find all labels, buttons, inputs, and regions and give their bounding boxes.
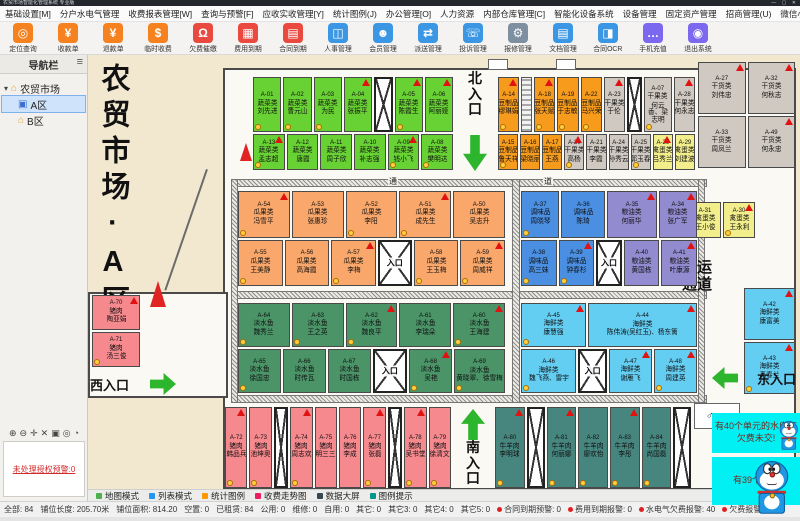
market-stall[interactable]: A-59瓜果类周威祥 (460, 240, 505, 287)
warning-panel: 未处理授权预警:0 (3, 441, 85, 497)
market-stall[interactable]: A-77猪肉张磊 (363, 407, 385, 488)
market-stall[interactable]: A-13蔬菜类孟志超 (253, 134, 285, 170)
toolbar-button[interactable]: ◎定位查询 (2, 23, 44, 54)
market-stall[interactable]: A-12蔬菜类唐霞 (287, 134, 319, 170)
market-stall[interactable]: A-01蔬菜类刘先进 (253, 77, 281, 132)
market-stall[interactable]: A-57瓜果类李梅 (331, 240, 376, 287)
stall-id: A-35 (626, 202, 639, 210)
stall-category: 牛羊肉 (615, 443, 635, 451)
stall-id: A-66 (298, 359, 311, 367)
doraemon-part (769, 468, 771, 471)
market-stall[interactable]: A-24干果类孙秀云 (609, 134, 629, 170)
toolbar-button-label: 费用到期 (234, 43, 262, 53)
market-stall[interactable]: A-73猪肉池坤奥 (249, 407, 271, 488)
market-stall[interactable]: A-79猪肉徐清文 (429, 407, 451, 488)
tree-node-area-b[interactable]: ⌂ B区 (2, 112, 85, 128)
toolbar-button[interactable]: ⚙报修管理 (497, 23, 539, 54)
doraemon-mascot (778, 421, 800, 452)
elevator-icon (374, 77, 392, 132)
market-stall[interactable]: A-23干果类于伦 (604, 77, 625, 132)
market-stall[interactable]: A-16豆制品梁晓丽 (520, 134, 540, 170)
stall-tenant: 何永志 (674, 109, 694, 117)
stairs-icon (521, 77, 532, 132)
toolbar-button[interactable]: ☏投诉管理 (452, 23, 494, 54)
market-stall[interactable]: A-02蔬菜类曹元山 (283, 77, 311, 132)
stall-id: A-80 (503, 435, 516, 443)
market-stall[interactable]: A-64淡水鱼魏秀兰 (238, 303, 290, 347)
market-map: 通道农贸市场·A区货运通道A-01蔬菜类刘先进A-02蔬菜类曹元山A-03蔬菜类… (88, 55, 800, 489)
stall-id: A-77 (368, 435, 381, 443)
elevator-entrance-icon: 入口 (373, 349, 408, 393)
locate-icon[interactable]: ◎ (63, 428, 71, 439)
market-stall[interactable]: A-26禽蛋类吕秀兰 (653, 134, 673, 170)
market-stall[interactable]: A-08蔬菜类樊明达 (421, 134, 453, 170)
stall-category: 瓜果类 (344, 258, 364, 266)
toolbar-button[interactable]: ◉退出系统 (677, 23, 719, 54)
stall-category: 豆制品 (520, 147, 540, 155)
history-icon[interactable]: ◔ (74, 428, 79, 439)
zoom-out-icon[interactable]: ⊖ (20, 428, 28, 439)
meter-marker-icon (390, 162, 396, 168)
toolbar-button[interactable]: ▤文档管理 (542, 23, 584, 54)
market-stall[interactable]: A-33干货类周凤兰 (698, 116, 746, 168)
tab-icon (317, 493, 323, 499)
stall-category: 豆制品 (498, 147, 518, 155)
stall-category: 猪肉 (295, 443, 308, 451)
stall-id: A-79 (433, 435, 446, 443)
stall-tenant: 于伦 (608, 109, 621, 117)
tab-收费走势图[interactable]: 收费走势图 (255, 490, 307, 502)
market-stall[interactable]: A-36调味品陈琦 (561, 191, 605, 238)
market-stall[interactable]: A-32干货类何秋志 (748, 62, 796, 114)
stall-tenant: 樊明达 (427, 156, 447, 164)
toolbar-button[interactable]: $临时收费 (137, 23, 179, 54)
stall-id: A-37 (534, 202, 547, 210)
meter-marker-icon (251, 480, 257, 486)
arrears-warning-icon (130, 297, 138, 304)
market-stall[interactable]: A-06蔬菜类阿丽娅 (425, 77, 453, 132)
market-stall[interactable]: A-72猪肉韩品兵 (225, 407, 247, 488)
home-icon: ⌂ (11, 83, 17, 94)
market-stall[interactable]: A-53瓜果类张惠珍 (292, 191, 344, 238)
toolbar-button[interactable]: ¥退款单 (92, 23, 134, 54)
tab-数据大屏[interactable]: 数据大屏 (317, 490, 360, 502)
market-stall[interactable]: A-83牛羊肉李彤 (610, 407, 640, 488)
stall-tenant: 李梅 (347, 267, 360, 275)
market-stall[interactable]: A-09蔬菜类钱小飞 (388, 134, 420, 170)
stall-tenant: 唐霞 (296, 156, 309, 164)
market-stall[interactable]: A-62淡水鱼魏良平 (346, 303, 398, 347)
stall-id: A-46 (542, 359, 555, 367)
market-stall[interactable]: A-67淡水鱼时国栋 (328, 349, 371, 393)
menu-item[interactable]: 内部仓库管理[C] (483, 8, 545, 20)
stall-row: A-55瓜果类王美静A-56瓜果类高海霞A-57瓜果类李梅入口A-58瓜果类王玉… (238, 240, 505, 287)
menu-item[interactable]: 固定资产管理 (666, 8, 717, 20)
stall-id: A-40 (635, 250, 648, 258)
stall-tenant: 明三三 (316, 451, 336, 459)
meter-marker-icon (348, 339, 354, 345)
stall-tenant: 王美静 (250, 267, 270, 275)
menu-item[interactable]: 设备管理 (623, 8, 657, 20)
stall-category: 瓜果类 (473, 258, 493, 266)
stall-tenant: 周子欣 (326, 156, 346, 164)
market-stall[interactable]: A-17豆制品王燕 (542, 134, 562, 170)
meter-marker-icon (348, 230, 354, 236)
stall-category: 干货类 (761, 137, 781, 145)
toolbar-button-label: 会员管理 (369, 43, 397, 53)
home-icon: ⌂ (18, 115, 24, 126)
market-stall[interactable]: A-52瓜果类李阳 (346, 191, 398, 238)
stall-id: A-44 (636, 313, 649, 321)
stall-id: A-49 (765, 130, 778, 138)
stall-id: A-72 (230, 435, 243, 443)
market-stall[interactable]: A-47海鲜类谢雁飞 (609, 349, 652, 393)
entrance-left: 东入口 (714, 365, 796, 391)
market-stall[interactable]: A-51瓜果类成先生 (399, 191, 451, 238)
stall-block: A-64淡水鱼魏秀兰A-63淡水鱼王之英A-62淡水鱼魏良平A-61淡水鱼李瑞朵… (238, 303, 505, 393)
stall-id: A-13 (262, 140, 275, 148)
meter-marker-icon (431, 480, 437, 486)
market-stall[interactable]: A-70猪肉陶亚娟 (92, 295, 140, 330)
market-stall[interactable]: A-39调味品钟春杉 (559, 240, 595, 287)
entrance-label: 西入口 (90, 375, 129, 394)
stall-tenant: 吴书堂 (405, 451, 425, 459)
elevator-entrance-icon: 入口 (378, 240, 412, 287)
stall-row: A-01蔬菜类刘先进A-02蔬菜类曹元山A-03蔬菜类为民A-04蔬菜类张振平A… (253, 77, 453, 132)
market-stall[interactable]: A-80牛羊肉李明球 (495, 407, 525, 488)
status-alert: 合同到期预警: 0 (497, 504, 561, 515)
stall-id: A-52 (365, 202, 378, 210)
close-icon[interactable]: ✕ (41, 428, 49, 439)
market-stall[interactable]: A-30禽蛋类王永利 (723, 202, 755, 238)
image-icon[interactable]: ▣ (51, 428, 60, 439)
meter-marker-icon (580, 480, 586, 486)
menu-item[interactable]: 收费报表管理[W] (128, 8, 192, 20)
stall-tenant: 刘伟忠 (712, 92, 732, 100)
stall-category: 干果类 (604, 100, 624, 108)
stall-category: 蔬菜类 (429, 100, 449, 108)
market-stall[interactable]: A-34粮油类张广军 (659, 191, 697, 238)
tab-label: 列表模式 (158, 490, 192, 502)
market-stall[interactable]: A-50瓜果类吴志升 (453, 191, 505, 238)
market-stall[interactable]: A-38调味品高三妹 (521, 240, 557, 287)
toolbar-button[interactable]: Ω欠费催缴 (182, 23, 224, 54)
stall-id: A-75 (319, 435, 332, 443)
stall-tenant: 谢雁飞 (620, 375, 640, 383)
stall-block: A-72猪肉韩品兵A-73猪肉池坤奥A-74猪肉周志欢A-75猪肉明三三A-76… (225, 407, 451, 488)
entrance-label: 北入口 (468, 71, 483, 118)
meter-marker-icon (401, 230, 407, 236)
tree-node-market[interactable]: ▾ ⌂ 农贸市场 (2, 80, 85, 96)
alert-dot-icon (497, 507, 502, 512)
pan-icon[interactable]: ✛ (30, 428, 38, 439)
meter-marker-icon (455, 339, 461, 345)
meter-marker-icon (725, 230, 731, 236)
toolbar-button[interactable]: ☻会员管理 (362, 23, 404, 54)
tree-node-area-a[interactable]: ▣ A区 (2, 96, 85, 112)
stall-category: 调味品 (573, 209, 593, 217)
stall-tenant: 周凤兰 (712, 146, 732, 154)
temp-fee-icon: $ (148, 23, 168, 43)
market-stall[interactable]: A-45海鲜类康慧强 (521, 303, 586, 347)
market-stall[interactable]: A-41粮油类叶康源 (661, 240, 697, 287)
corridor-hatch (231, 179, 238, 403)
stall-id: A-43 (763, 356, 776, 364)
unprocessed-warning-link[interactable]: 未处理授权预警:0 (13, 464, 76, 475)
market-stall[interactable]: A-03蔬菜类为民 (314, 77, 342, 132)
corridor-label: 通 (388, 177, 398, 186)
market-stall[interactable]: A-05蔬菜类陈霞生 (395, 77, 423, 132)
stall-tenant: 韩品兵 (226, 451, 246, 459)
elevator-icon (274, 407, 288, 488)
tree-node-label: B区 (27, 113, 44, 128)
menu-item[interactable]: 查询与预警[F] (201, 8, 253, 20)
tab-图例提示[interactable]: 图例提示 (370, 490, 413, 502)
tab-label: 图例提示 (379, 490, 413, 502)
stall-row: A-65淡水鱼徐国忠A-66淡水鱼时传瓦A-67淡水鱼时国栋入口A-68淡水鱼吴… (238, 349, 505, 393)
market-stall[interactable]: A-84牛羊肉尚国磊 (642, 407, 672, 488)
stall-id: A-60 (473, 313, 486, 321)
tab-列表模式[interactable]: 列表模式 (149, 490, 192, 502)
meter-marker-icon (94, 359, 100, 365)
market-stall[interactable]: A-15豆制品鲁天祥 (498, 134, 518, 170)
hamburger-icon[interactable]: ≡ (77, 56, 83, 68)
arrears-warning-icon (615, 79, 623, 86)
stall-id: A-33 (715, 130, 728, 138)
market-stall[interactable]: A-28干果类何永志 (674, 77, 695, 132)
stall-tenant: 周志欢 (291, 451, 311, 459)
market-stall[interactable]: A-40粮油类黄国栋 (624, 240, 660, 287)
stall-category: 禽蛋类 (729, 215, 749, 223)
stall-category: 猪肉 (319, 443, 332, 451)
menu-item[interactable]: 统计图例(J) (333, 8, 377, 20)
nav-title: 导航栏 (29, 57, 59, 72)
market-stall[interactable]: A-35粮油类何丽华 (607, 191, 656, 238)
stall-category: 蔬菜类 (257, 100, 277, 108)
stall-id: A-01 (261, 92, 274, 100)
tab-地图模式[interactable]: 地图模式 (96, 490, 139, 502)
market-stall[interactable]: A-29禽蛋类刘建波 (675, 134, 695, 170)
stall-category: 牛羊肉 (551, 443, 571, 451)
stall-id: A-10 (364, 140, 377, 148)
market-stall[interactable]: A-78猪肉吴书堂 (404, 407, 426, 488)
stall-category: 猪肉 (409, 443, 422, 451)
stall-category: 瓜果类 (250, 258, 270, 266)
menu-item[interactable]: 分户水电气管理 (60, 8, 120, 20)
toolbar-button[interactable]: …手机充值 (632, 23, 674, 54)
market-stall[interactable]: A-69淡水鱼黄晓翠、徐雪梅 (454, 349, 505, 393)
meter-marker-icon (633, 162, 639, 168)
menu-item[interactable]: 基础设置[M] (5, 8, 51, 20)
menu-item[interactable]: 微信小程序(Z) (780, 8, 800, 20)
arrears-warning-icon (495, 305, 503, 312)
arrears-warning-icon (687, 242, 695, 249)
stall-id: A-14 (502, 92, 515, 100)
status-metric: 铺位面积: 814.20 (116, 504, 177, 515)
toolbar-button-label: 报修管理 (504, 43, 532, 53)
stall-tenant: 张天赋 (535, 109, 555, 117)
stall-tenant: 黄国栋 (632, 267, 652, 275)
market-stall[interactable]: A-68淡水鱼吴艳 (409, 349, 452, 393)
meter-marker-icon (240, 339, 246, 345)
toolbar-button[interactable]: ¥收款单 (47, 23, 89, 54)
stall-category: 淡水鱼 (294, 366, 314, 374)
market-stall[interactable]: A-82牛羊肉廖欢怡 (578, 407, 608, 488)
market-stall[interactable]: A-27干货类刘伟忠 (698, 62, 746, 114)
status-alert: 费用到期报警: 0 (568, 504, 632, 515)
stall-tenant: 魏秀兰 (254, 329, 274, 337)
hr-icon: ◫ (328, 23, 348, 43)
market-stall[interactable]: A-61淡水鱼李瑞朵 (399, 303, 451, 347)
stall-category: 干果类 (564, 147, 584, 155)
market-stall[interactable]: A-60淡水鱼王海建 (453, 303, 505, 347)
market-stall[interactable]: A-71猪肉汤三俊 (92, 332, 140, 367)
stall-id: A-28 (678, 92, 691, 100)
market-stall[interactable]: A-63淡水鱼王之英 (292, 303, 344, 347)
toolbar-button[interactable]: ▦费用到期 (227, 23, 269, 54)
meter-marker-icon (523, 278, 529, 284)
market-stall[interactable]: A-66淡水鱼时传瓦 (283, 349, 326, 393)
stall-row: A-46海鲜类魏飞燕、雷宇入口A-47海鲜类谢雁飞A-48海鲜类周建英 (521, 349, 697, 393)
stall-tenant: 康慧强 (544, 329, 564, 337)
market-stall[interactable]: A-58瓜果类王玉梅 (414, 240, 459, 287)
map-tool-strip: ⊕⊖✛✕▣◎◔ (0, 428, 88, 439)
toolbar-button-label: 合同到期 (279, 43, 307, 53)
market-stall[interactable]: A-07干果类何云香、梁志明 (644, 77, 672, 132)
stall-id: A-34 (671, 202, 684, 210)
market-stall[interactable]: A-46海鲜类魏飞燕、雷宇 (521, 349, 576, 393)
meter-marker-icon (644, 480, 650, 486)
market-stall[interactable]: A-10蔬菜类补志强 (354, 134, 386, 170)
stall-tenant: 康富美 (760, 318, 780, 326)
meter-marker-icon (566, 162, 572, 168)
elevator-entrance-icon: 入口 (596, 240, 622, 287)
stall-id: A-41 (673, 250, 686, 258)
menu-item[interactable]: 智能化设备系统 (554, 8, 614, 20)
market-stall[interactable]: A-19豆制品于志敏 (557, 77, 578, 132)
stall-category: 淡水鱼 (249, 366, 269, 374)
stall-id: A-64 (258, 313, 271, 321)
stall-tenant: 李瑞朵 (415, 329, 435, 337)
stall-tenant: 李霞 (590, 156, 603, 164)
stall-tenant: 马兴荣 (581, 109, 601, 117)
toolbar-button-label: 合同OCR (593, 43, 622, 53)
market-stall[interactable]: A-74猪肉周志欢 (290, 407, 312, 488)
menu-item[interactable]: 应收实收管理[Y] (263, 8, 324, 20)
stall-block: A-80牛羊肉李明球A-81牛羊肉何丽娜A-82牛羊肉廖欢怡A-83牛羊肉李彤A… (495, 407, 691, 488)
stall-id: A-24 (612, 140, 625, 148)
market-stall[interactable]: A-81牛羊肉何丽娜 (547, 407, 577, 488)
arrears-warning-icon (376, 409, 384, 416)
arrears-warning-icon (387, 305, 395, 312)
market-stall[interactable]: A-65淡水鱼徐国忠 (238, 349, 281, 393)
stall-category: 蔬菜类 (399, 100, 419, 108)
tab-icon (96, 493, 102, 499)
entrance-label: 东入口 (757, 369, 796, 388)
menu-item[interactable]: 人力资源 (440, 8, 474, 20)
zoom-in-icon[interactable]: ⊕ (9, 428, 17, 439)
entrance-up: 南入口 (455, 409, 491, 487)
arrears-warning-icon (785, 344, 793, 351)
stall-category: 瓜果类 (469, 209, 489, 217)
market-stall[interactable]: A-48海鲜类周建英 (654, 349, 697, 393)
entrance-mini-label: 入口 (386, 257, 404, 268)
arrears-warning-icon (584, 242, 592, 249)
market-stall[interactable]: A-22豆制品马兴荣 (581, 77, 602, 132)
market-stall[interactable]: A-42海鲜类康富美 (744, 288, 795, 340)
arrears-warning-icon (630, 409, 638, 416)
stall-category: 蔬菜类 (326, 147, 346, 155)
stall-category: 禽蛋类 (653, 147, 673, 155)
wall-diagonal (164, 169, 208, 291)
menu-item[interactable]: 办公管理[O] (386, 8, 431, 20)
status-metric: 已租赁: 84 (216, 504, 253, 515)
entrance-mini-label: 入口 (584, 366, 602, 377)
stall-tenant: 陈霞生 (399, 109, 419, 117)
toolbar-button[interactable]: ◫人事管理 (317, 23, 359, 54)
elevator-entrance-icon: 入口 (578, 349, 607, 393)
arrears-warning-icon (745, 204, 753, 211)
stall-id: A-55 (254, 250, 267, 258)
stall-id: A-45 (547, 313, 560, 321)
stall-tenant: 时传瓦 (294, 375, 314, 383)
market-stall[interactable]: A-14豆制品缪琳娟 (498, 77, 519, 132)
market-stall[interactable]: A-55瓜果类王美静 (238, 240, 283, 287)
market-stall[interactable]: A-25干果类郭玉春 (631, 134, 651, 170)
market-stall[interactable]: A-75猪肉明三三 (315, 407, 337, 488)
stall-tenant: 黄晓翠、徐雪梅 (456, 376, 503, 383)
meter-marker-icon (523, 230, 529, 236)
market-stall[interactable]: A-11蔬菜类周子欣 (320, 134, 352, 170)
tab-label: 收费走势图 (264, 490, 307, 502)
market-stall[interactable]: A-56瓜果类高海霞 (285, 240, 330, 287)
stall-category: 猪肉 (368, 443, 381, 451)
tab-统计图例[interactable]: 统计图例 (202, 490, 245, 502)
stall-id: A-53 (311, 202, 324, 210)
stall-tenant: 高海霞 (297, 267, 317, 275)
stall-tenant: 张惠珍 (308, 218, 328, 226)
menu-item[interactable]: 招商管理(U) (726, 8, 772, 20)
stall-tenant: 周威祥 (473, 267, 493, 275)
status-metric: 其它3: 0 (388, 504, 417, 515)
stall-id: A-51 (419, 202, 432, 210)
stall-category: 豆制品 (535, 100, 555, 108)
toolbar-button[interactable]: ◨合同OCR (587, 23, 629, 54)
market-stall[interactable]: A-18豆制品张天赋 (534, 77, 555, 132)
market-stall[interactable]: A-76猪肉李成 (339, 407, 361, 488)
stall-id: A-09 (397, 140, 410, 148)
stall-tenant: 陈伟涛(吴红玉)、杨东篱 (607, 330, 678, 337)
market-stall[interactable]: A-04蔬菜类张振平 (344, 77, 372, 132)
doraemon-part (770, 472, 776, 478)
market-stall[interactable]: A-44海鲜类陈伟涛(吴红玉)、杨东篱 (588, 303, 697, 347)
member-icon: ☻ (373, 23, 393, 43)
stall-tenant: 张振平 (348, 109, 368, 117)
market-stall[interactable]: A-37调味品周晓琴 (521, 191, 559, 238)
market-stall[interactable]: A-21干果类李霞 (586, 134, 606, 170)
market-stall[interactable]: A-54瓜果类冯雪平 (238, 191, 290, 238)
stall-id: A-18 (538, 92, 551, 100)
stall-tenant: 周晓琴 (530, 218, 550, 226)
toolbar-button[interactable]: ▤合同到期 (272, 23, 314, 54)
stall-tenant: 王之英 (308, 329, 328, 337)
stall-id: A-63 (311, 313, 324, 321)
stall-id: A-58 (430, 250, 443, 258)
roof-vent (488, 59, 508, 70)
market-stall[interactable]: A-49干货类何永忠 (748, 116, 796, 168)
market-stall[interactable]: A-20干果类高杨 (564, 134, 584, 170)
toolbar-button[interactable]: ⇄派送管理 (407, 23, 449, 54)
